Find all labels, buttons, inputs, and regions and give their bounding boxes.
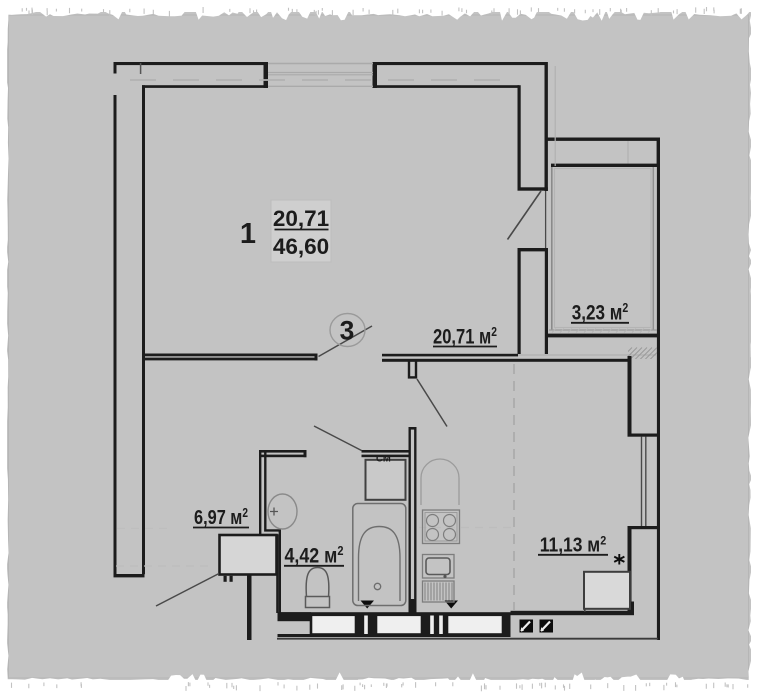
svg-text:1: 1 — [240, 218, 256, 250]
svg-text:46,60: 46,60 — [273, 234, 329, 259]
svg-text:3: 3 — [340, 316, 355, 346]
svg-text:20,71 м2: 20,71 м2 — [433, 324, 497, 348]
svg-text:6,97 м2: 6,97 м2 — [194, 506, 248, 529]
svg-text:11,13 м2: 11,13 м2 — [540, 534, 607, 557]
svg-text:20,71: 20,71 — [273, 206, 329, 231]
svg-text:4,42 м2: 4,42 м2 — [285, 543, 344, 568]
svg-text:3,23 м2: 3,23 м2 — [572, 300, 629, 325]
svg-text:CM: CM — [376, 454, 391, 465]
